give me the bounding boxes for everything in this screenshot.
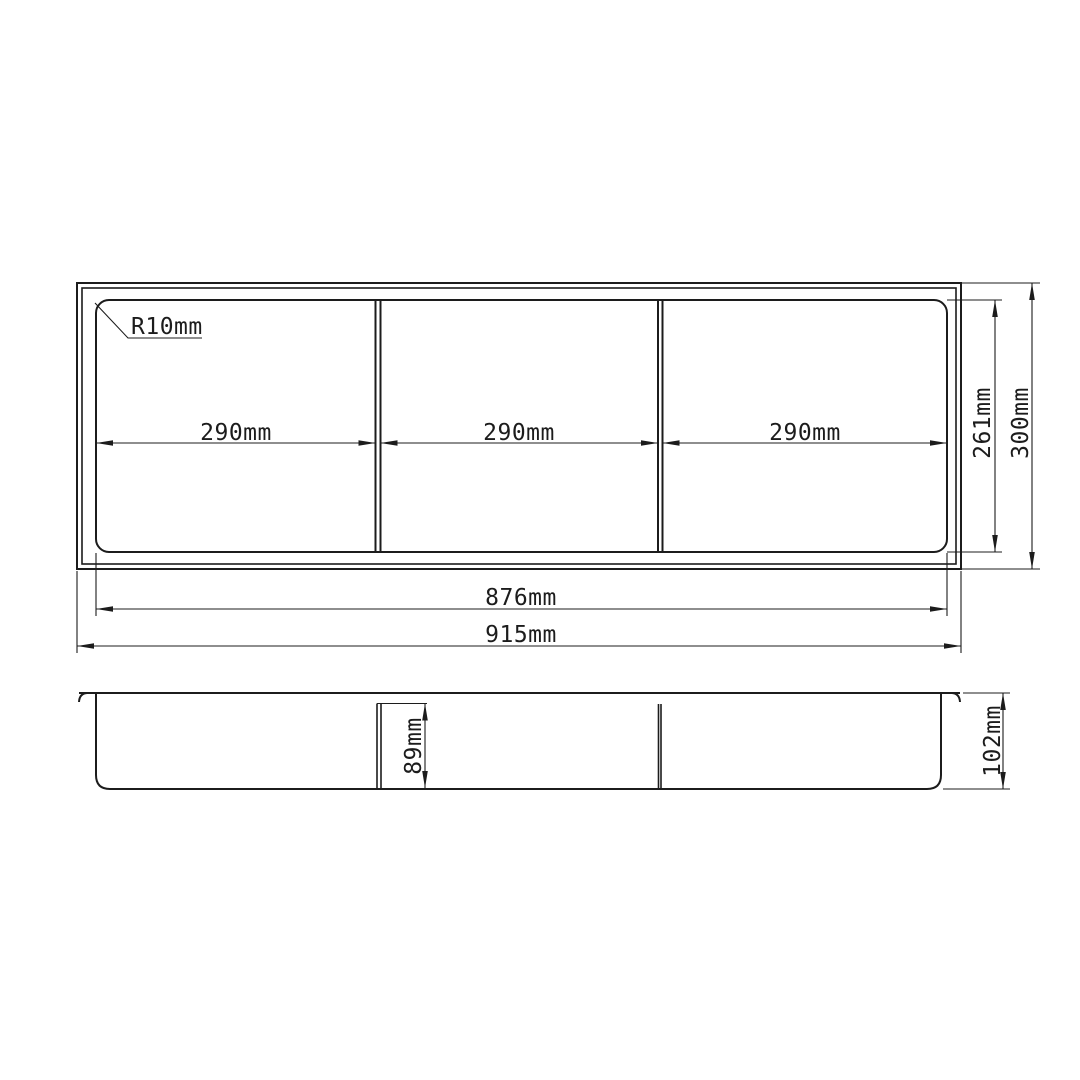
overall-width-label: 915mm — [485, 622, 557, 648]
corner-radius-label: R10mm — [131, 314, 203, 340]
section-width-dimensions: 290mm 290mm 290mm — [96, 420, 947, 446]
flange-lip-left — [79, 693, 87, 702]
plan-divider-1 — [376, 300, 381, 552]
inner-width-label: 876mm — [485, 585, 557, 611]
section-flange — [79, 693, 960, 702]
overall-depth-label: 102mm — [980, 705, 1006, 777]
flange-lip-right — [952, 693, 960, 702]
section-view: 89mm 102mm — [79, 693, 1010, 789]
divider-height-dimension: 89mm — [401, 704, 428, 789]
plan-view: R10mm 290mm 290mm 290mm 261mm — [77, 283, 1040, 653]
overall-height-label: 300mm — [1008, 387, 1034, 459]
section-width-2-label: 290mm — [483, 420, 555, 446]
section-body-outline — [96, 693, 941, 789]
section-width-1-label: 290mm — [200, 420, 272, 446]
overall-width-dimension: 915mm — [77, 571, 961, 653]
divider-height-label: 89mm — [401, 717, 427, 774]
section-width-3-label: 290mm — [769, 420, 841, 446]
niche-dimension-drawing: R10mm 290mm 290mm 290mm 261mm — [0, 0, 1080, 1080]
technical-drawing-canvas: R10mm 290mm 290mm 290mm 261mm — [0, 0, 1080, 1080]
inner-width-dimension: 876mm — [96, 553, 947, 616]
section-divider-2 — [659, 704, 662, 789]
inner-height-label: 261mm — [970, 387, 996, 459]
plan-divider-2 — [658, 300, 663, 552]
overall-depth-dimension: 102mm — [943, 693, 1010, 789]
corner-radius-callout: R10mm — [95, 303, 203, 340]
